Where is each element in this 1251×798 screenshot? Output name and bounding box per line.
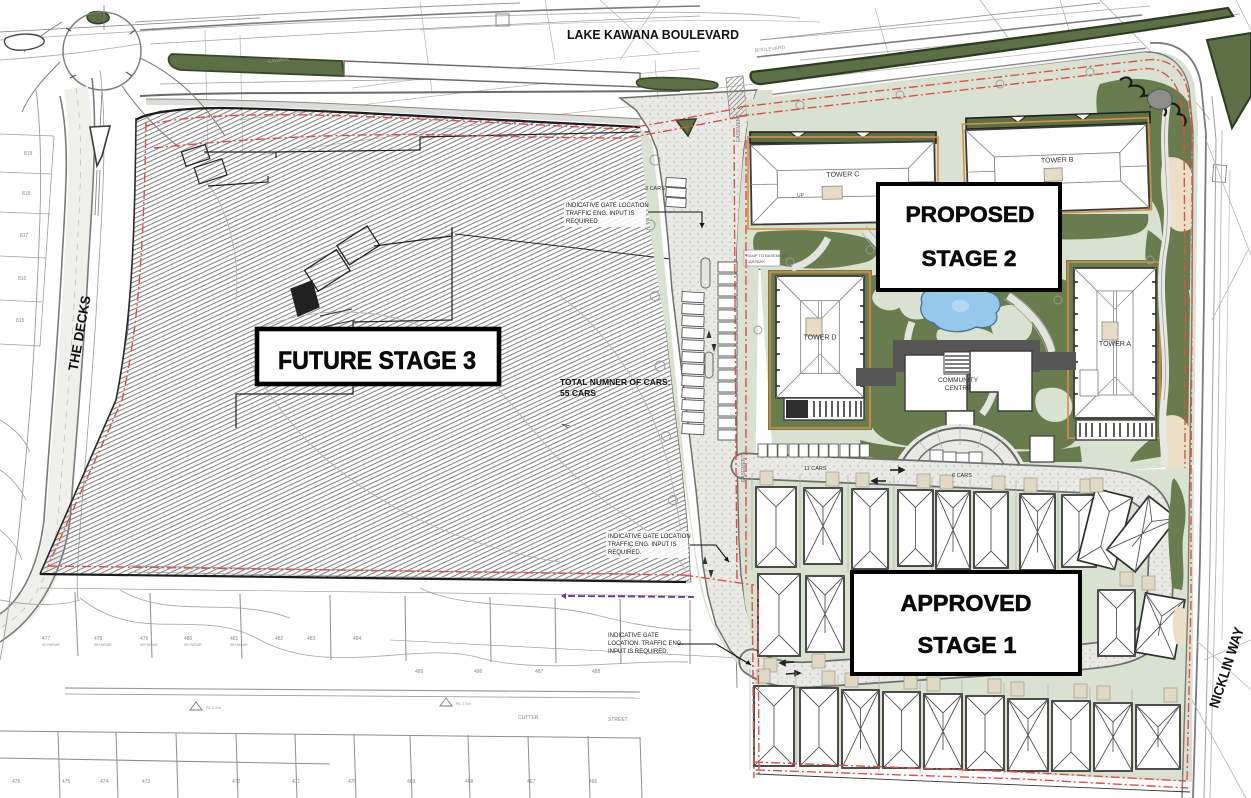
- svg-text:COMMUNITY: COMMUNITY: [938, 377, 979, 384]
- svg-text:470: 470: [348, 779, 357, 785]
- svg-text:483: 483: [307, 636, 316, 642]
- svg-text:REQUIRED.: REQUIRED.: [608, 550, 642, 556]
- svg-text:TOWER C: TOWER C: [826, 171, 859, 179]
- svg-text:TOTAL NUMNER OF CARS:: TOTAL NUMNER OF CARS:: [560, 377, 671, 387]
- svg-text:SEYMOUR: SEYMOUR: [230, 643, 248, 647]
- svg-text:INDICATIVE GATE LOCATION: INDICATIVE GATE LOCATION: [566, 203, 649, 209]
- svg-text:SEYMOUR: SEYMOUR: [140, 643, 158, 647]
- svg-text:474: 474: [100, 779, 109, 785]
- svg-text:APPROVED: APPROVED: [901, 590, 1032, 616]
- svg-text:STREET: STREET: [608, 717, 628, 723]
- svg-text:UP: UP: [797, 193, 805, 199]
- svg-text:RL 2.5m: RL 2.5m: [206, 705, 222, 710]
- svg-text:STAGE 2: STAGE 2: [922, 246, 1017, 271]
- svg-text:478: 478: [94, 636, 103, 642]
- svg-text:TOWER B: TOWER B: [1041, 157, 1074, 165]
- svg-text:471: 471: [292, 779, 301, 785]
- svg-text:TRAFFIC ENG. INPUT IS: TRAFFIC ENG. INPUT IS: [608, 542, 677, 548]
- svg-text:INPUT IS REQUIRED.: INPUT IS REQUIRED.: [608, 649, 669, 655]
- svg-text:818: 818: [22, 191, 31, 197]
- svg-text:INDICATIVE GATE: INDICATIVE GATE: [608, 633, 659, 639]
- svg-text:STAGE 1: STAGE 1: [918, 632, 1017, 658]
- svg-text:EASEMENT: EASEMENT: [741, 454, 747, 482]
- svg-text:11 CARS: 11 CARS: [804, 466, 827, 472]
- svg-text:EASEMENT: EASEMENT: [736, 114, 742, 142]
- svg-text:473: 473: [142, 779, 151, 785]
- svg-text:819: 819: [24, 151, 33, 157]
- svg-text:482: 482: [275, 636, 284, 642]
- svg-text:SEYMOUR: SEYMOUR: [42, 643, 60, 647]
- svg-text:486: 486: [474, 669, 483, 675]
- svg-text:CENTRE: CENTRE: [945, 385, 972, 392]
- svg-text:476: 476: [12, 779, 21, 785]
- svg-text:484: 484: [353, 636, 362, 642]
- svg-text:FUTURE STAGE 3: FUTURE STAGE 3: [278, 347, 476, 375]
- svg-text:REQUIRED: REQUIRED: [566, 219, 598, 225]
- svg-text:CARPARK: CARPARK: [746, 259, 765, 264]
- svg-text:RL 2.5m: RL 2.5m: [456, 701, 472, 706]
- svg-text:815: 815: [16, 318, 25, 324]
- svg-text:TOWER A: TOWER A: [1099, 341, 1131, 348]
- svg-text:PROPOSED: PROPOSED: [906, 202, 1035, 227]
- svg-text:480: 480: [184, 636, 193, 642]
- svg-text:475: 475: [62, 779, 71, 785]
- svg-text:SEYMOUR: SEYMOUR: [94, 643, 112, 647]
- svg-text:816: 816: [18, 276, 27, 282]
- svg-text:468: 468: [465, 779, 474, 785]
- svg-text:SEYMOUR: SEYMOUR: [184, 643, 202, 647]
- svg-text:3 CARS: 3 CARS: [645, 186, 665, 192]
- svg-text:CUTTER: CUTTER: [518, 715, 539, 721]
- svg-text:6 CARS: 6 CARS: [952, 473, 972, 479]
- svg-text:RAMP TO BASEMENT: RAMP TO BASEMENT: [746, 253, 788, 258]
- svg-text:INDICATIVE GATE LOCATION: INDICATIVE GATE LOCATION: [608, 534, 691, 540]
- svg-text:472: 472: [232, 779, 241, 785]
- svg-text:488: 488: [592, 669, 601, 675]
- svg-text:477: 477: [42, 636, 51, 642]
- svg-text:466: 466: [589, 779, 598, 785]
- svg-text:TOWER D: TOWER D: [804, 334, 837, 341]
- svg-text:487: 487: [535, 669, 544, 675]
- svg-text:55 CARS: 55 CARS: [560, 388, 596, 398]
- svg-text:LOCATION. TRAFFIC ENG.: LOCATION. TRAFFIC ENG.: [608, 641, 683, 647]
- svg-text:469: 469: [407, 779, 416, 785]
- svg-text:467: 467: [527, 779, 536, 785]
- svg-text:817: 817: [20, 233, 29, 239]
- svg-text:479: 479: [140, 636, 149, 642]
- svg-text:481: 481: [230, 636, 239, 642]
- svg-text:LAKE KAWANA BOULEVARD: LAKE KAWANA BOULEVARD: [567, 27, 739, 42]
- svg-text:485: 485: [415, 669, 424, 675]
- svg-text:TRAFFIC ENG. INPUT IS: TRAFFIC ENG. INPUT IS: [566, 211, 635, 217]
